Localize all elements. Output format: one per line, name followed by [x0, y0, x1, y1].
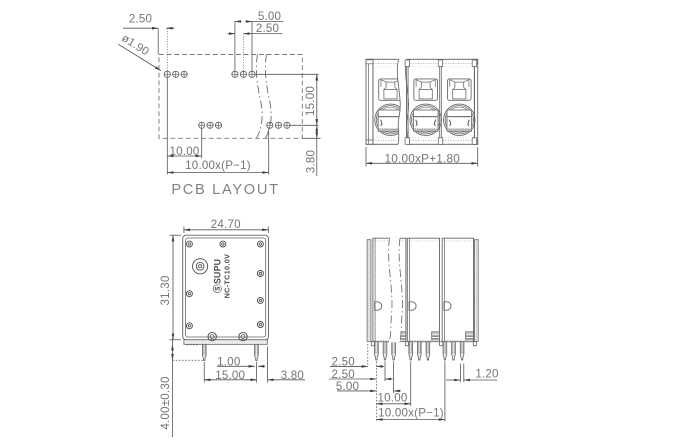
- svg-text:4.00±0.30: 4.00±0.30: [159, 376, 172, 429]
- svg-text:3.80: 3.80: [281, 369, 304, 382]
- svg-text:1.20: 1.20: [475, 368, 498, 381]
- svg-text:5.00: 5.00: [336, 380, 359, 393]
- svg-text:10.00x(P−1): 10.00x(P−1): [378, 407, 444, 420]
- svg-text:2.50: 2.50: [256, 22, 279, 35]
- svg-text:1.00: 1.00: [217, 355, 240, 368]
- svg-text:10.00: 10.00: [377, 392, 407, 405]
- svg-text:31.30: 31.30: [159, 275, 172, 305]
- svg-text:24.70: 24.70: [211, 218, 241, 231]
- svg-text:2.50: 2.50: [129, 13, 152, 26]
- svg-text:10.00: 10.00: [169, 145, 199, 158]
- svg-text:2.50: 2.50: [332, 356, 355, 369]
- svg-text:PCB LAYOUT: PCB LAYOUT: [171, 182, 279, 198]
- svg-text:10.00xP+1.80: 10.00xP+1.80: [385, 151, 461, 165]
- svg-text:NC-TC10.0V: NC-TC10.0V: [223, 254, 232, 299]
- svg-text:ⓈSUPU: ⓈSUPU: [211, 259, 222, 293]
- svg-text:15.00: 15.00: [215, 369, 245, 382]
- svg-text:3.80: 3.80: [305, 150, 318, 173]
- svg-text:15.00: 15.00: [304, 86, 317, 116]
- svg-text:10.00x(P−1): 10.00x(P−1): [185, 159, 251, 172]
